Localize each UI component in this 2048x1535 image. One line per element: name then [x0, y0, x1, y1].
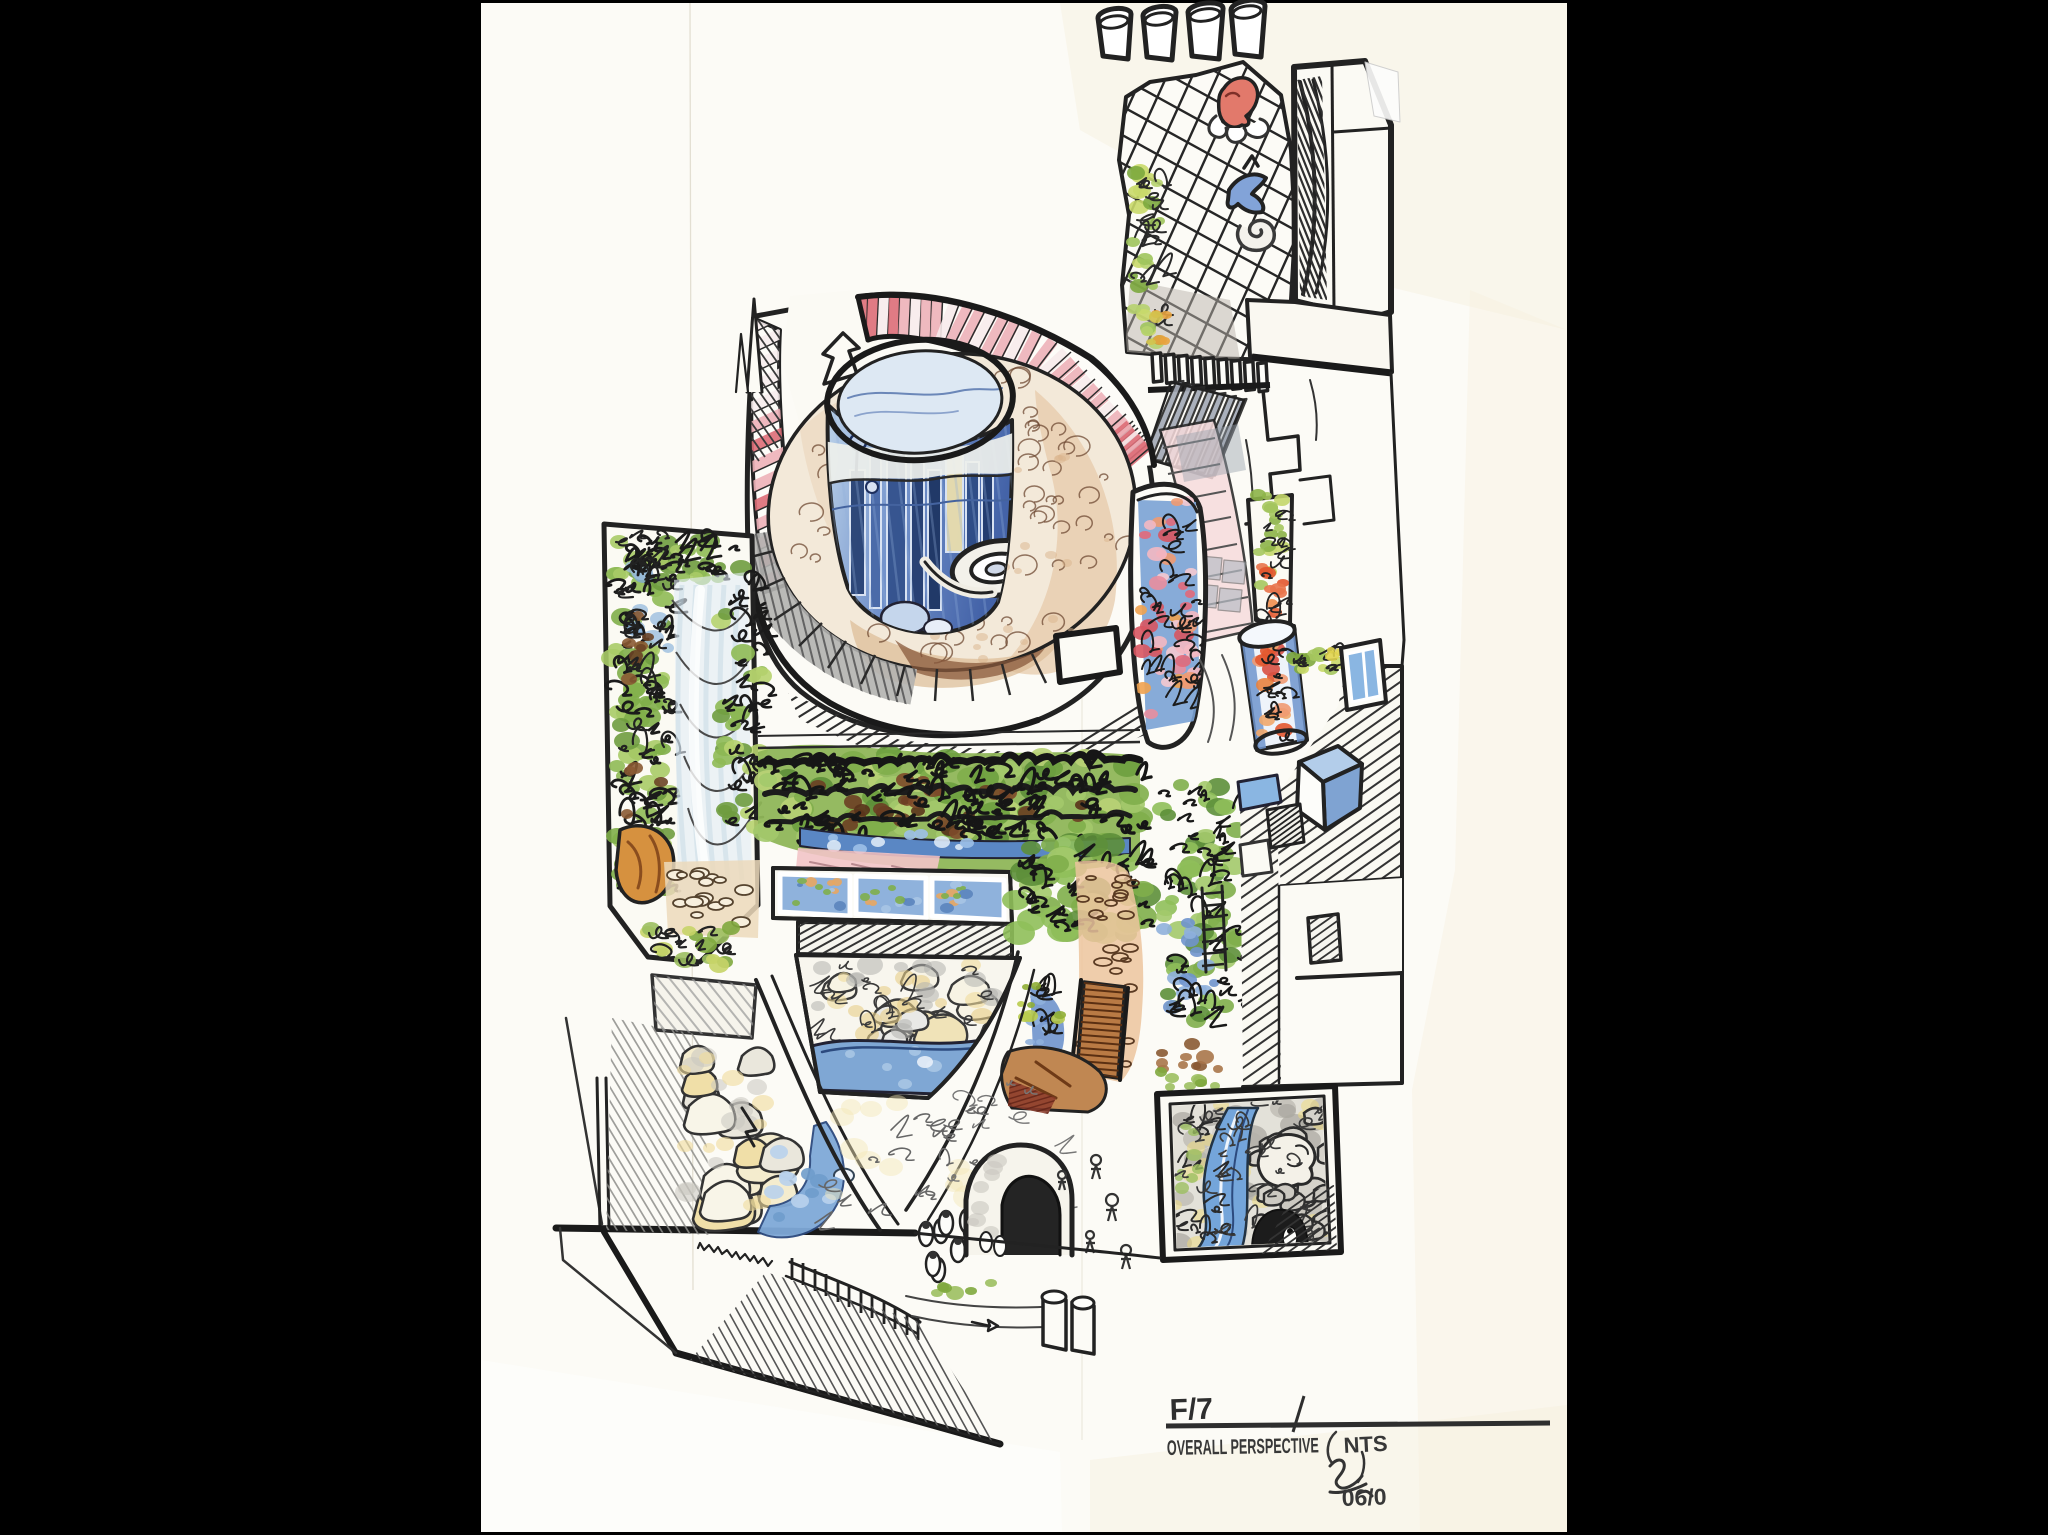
svg-text:NTS: NTS [1343, 1431, 1388, 1458]
svg-text:06/0: 06/0 [1341, 1483, 1387, 1511]
svg-text:F/7: F/7 [1169, 1393, 1213, 1427]
svg-text:OVERALL PERSPECTIVE: OVERALL PERSPECTIVE [1167, 1434, 1319, 1460]
